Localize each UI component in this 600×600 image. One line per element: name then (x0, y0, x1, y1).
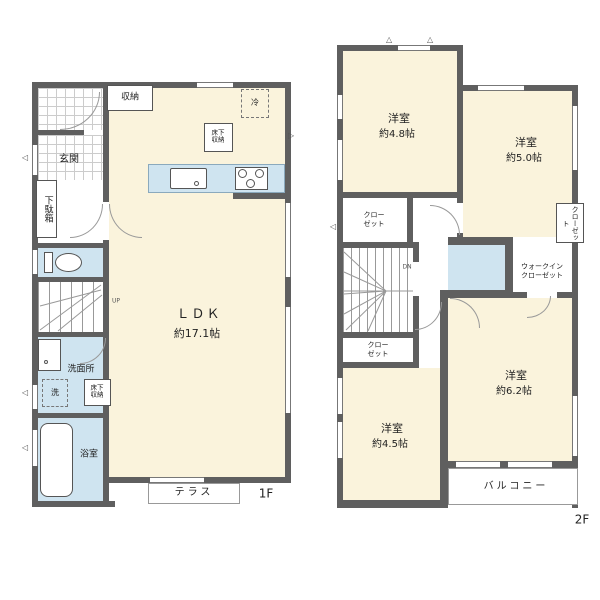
stair-lines (0, 0, 600, 600)
stair-diagonals-1f (40, 285, 102, 331)
floor-plan: 収納 冷 床下 収納 下駄箱 洗 床下 収納 玄関 ＬＤＫ 約17.1帖 UP … (0, 0, 600, 600)
stair-fan-2f (343, 252, 413, 331)
